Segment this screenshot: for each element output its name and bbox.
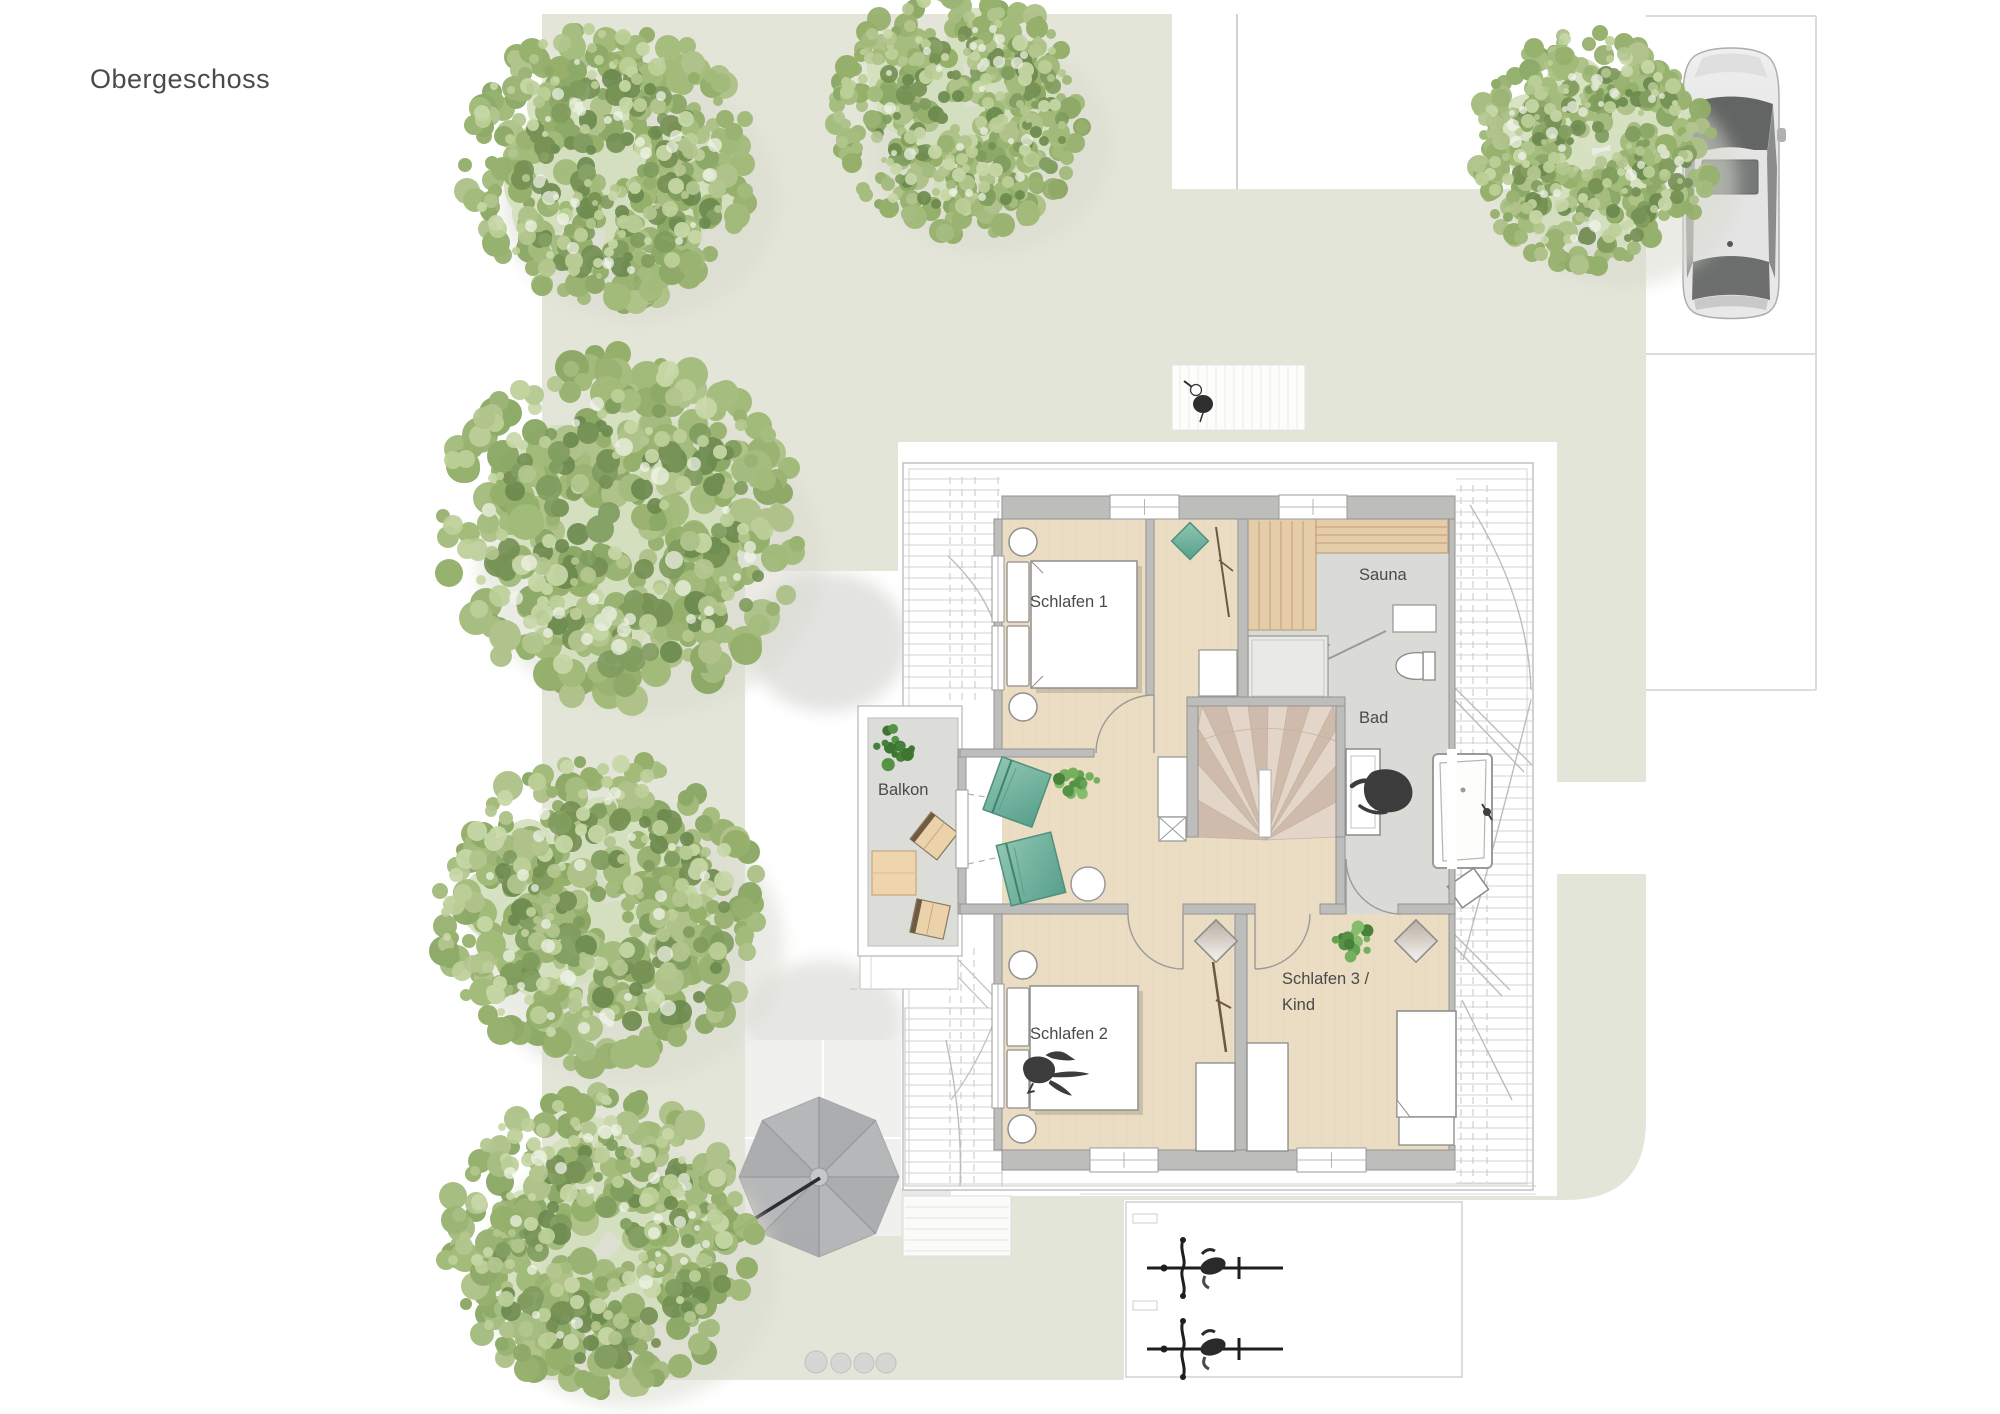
svg-text:Obergeschoss: Obergeschoss (90, 64, 270, 94)
svg-text:Schlafen 3 /: Schlafen 3 / (1282, 970, 1370, 988)
svg-text:Bad: Bad (1359, 709, 1388, 727)
svg-text:Schlafen 1: Schlafen 1 (1030, 593, 1108, 611)
svg-text:Sauna: Sauna (1359, 566, 1408, 584)
svg-text:Schlafen 2: Schlafen 2 (1030, 1025, 1108, 1043)
svg-text:Kind: Kind (1282, 996, 1315, 1014)
svg-text:Balkon: Balkon (878, 781, 928, 799)
